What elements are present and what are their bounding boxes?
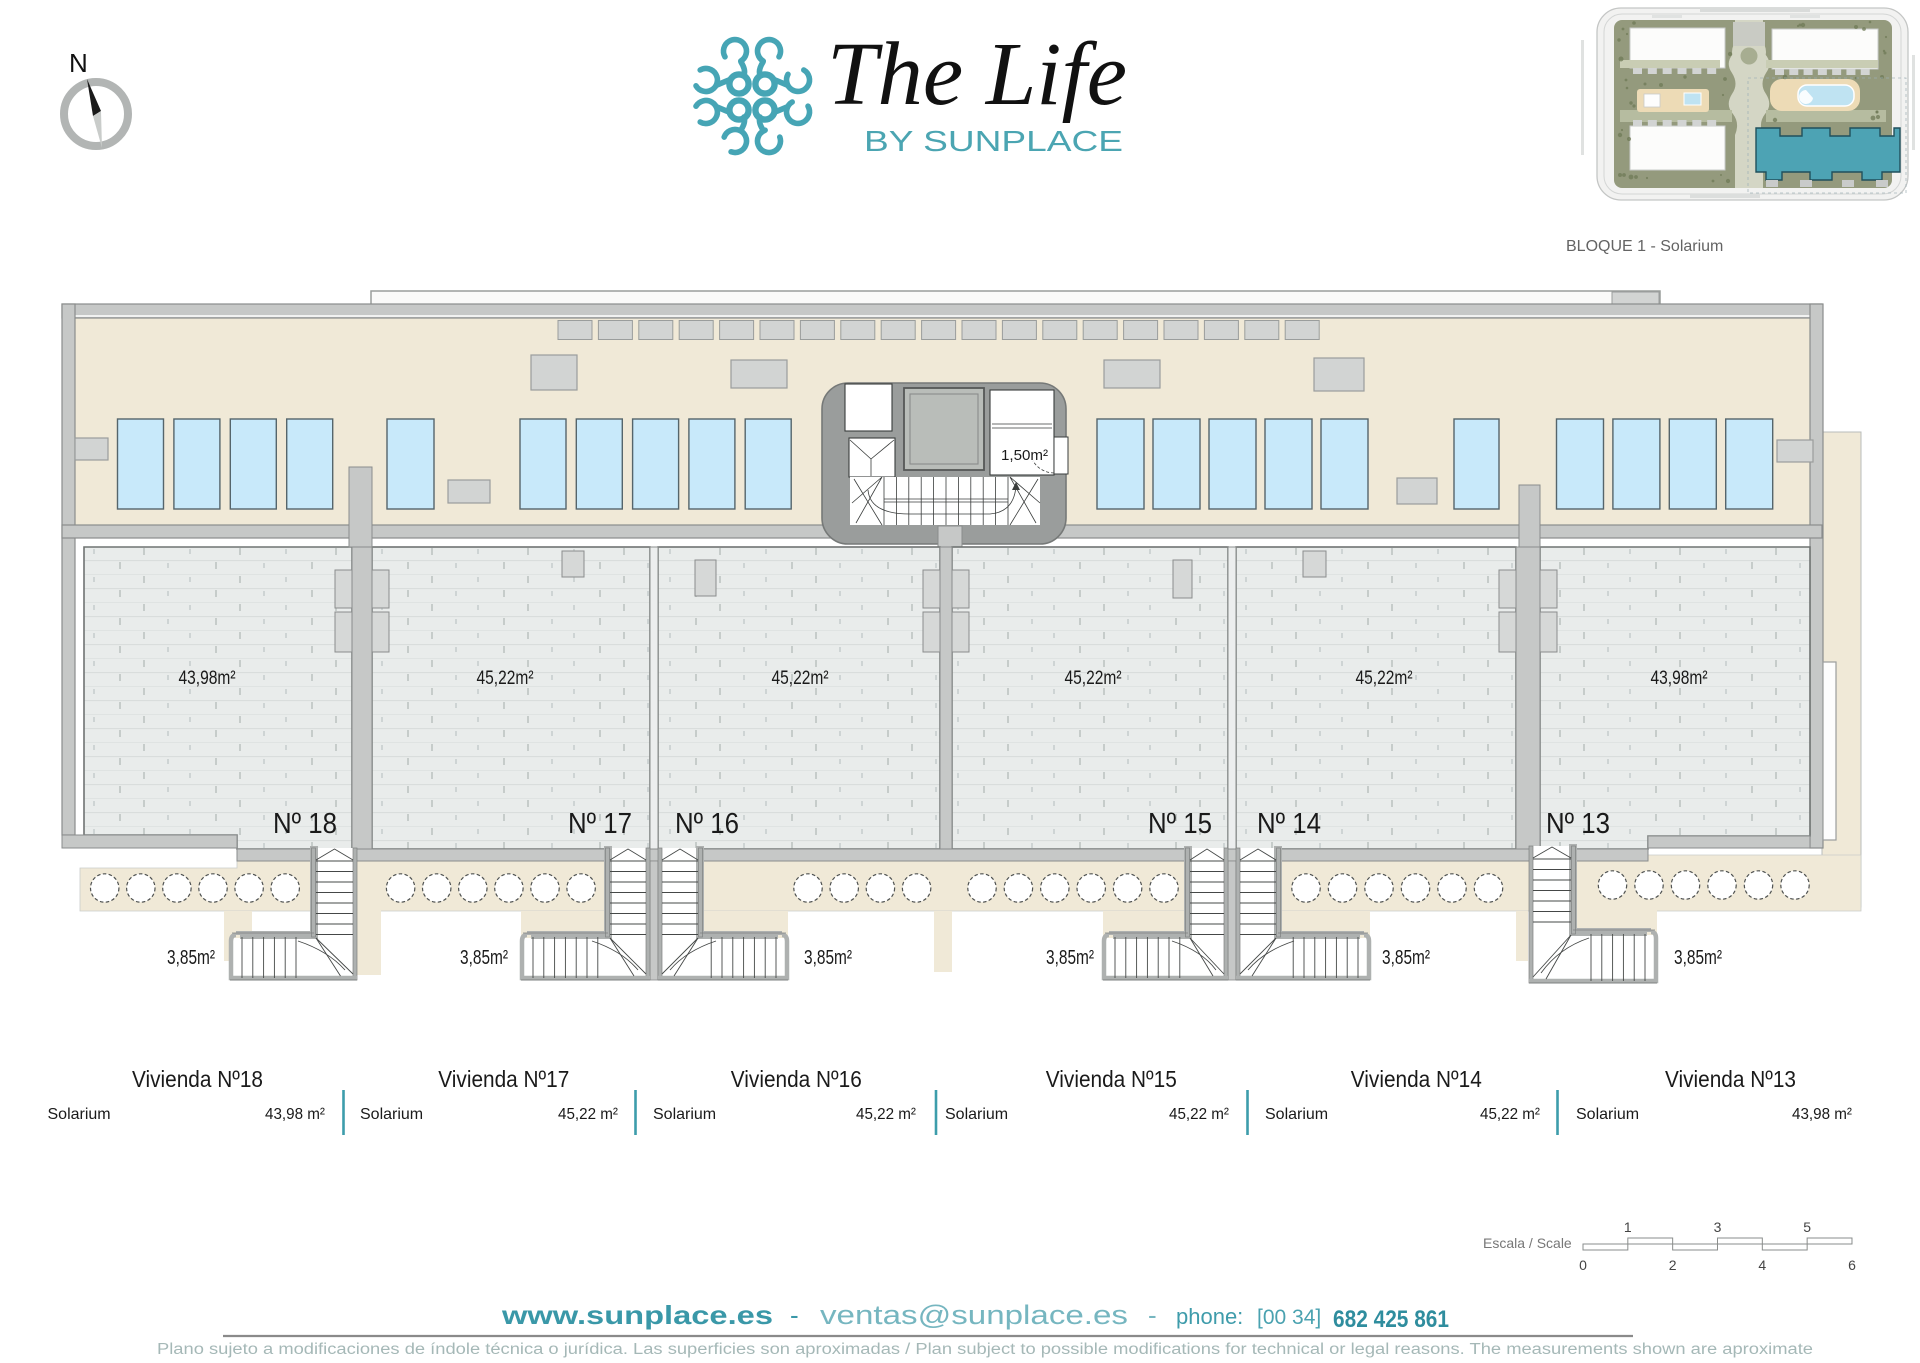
svg-text:43,98 m²: 43,98 m² <box>1792 1106 1853 1123</box>
svg-text:Nº 13: Nº 13 <box>1546 808 1610 840</box>
svg-text:3,85m²: 3,85m² <box>804 947 852 969</box>
svg-text:43,98 m²: 43,98 m² <box>265 1106 326 1123</box>
svg-text:phone:: phone: <box>1176 1304 1243 1329</box>
svg-text:45,22 m²: 45,22 m² <box>856 1106 917 1123</box>
svg-text:Escala / Scale: Escala / Scale <box>1483 1235 1572 1251</box>
svg-text:Nº 18: Nº 18 <box>273 808 337 840</box>
svg-text:Vivienda Nº17: Vivienda Nº17 <box>438 1066 569 1092</box>
svg-text:Vivienda Nº15: Vivienda Nº15 <box>1046 1066 1177 1092</box>
svg-text:5: 5 <box>1803 1219 1811 1235</box>
svg-text:Nº 14: Nº 14 <box>1257 808 1321 840</box>
svg-text:43,98m²: 43,98m² <box>1651 668 1708 689</box>
svg-text:[00 34]: [00 34] <box>1257 1306 1321 1329</box>
svg-text:43,98m²: 43,98m² <box>179 668 236 689</box>
svg-text:3,85m²: 3,85m² <box>1382 947 1430 969</box>
svg-text:45,22m²: 45,22m² <box>477 668 534 689</box>
svg-text:Nº 15: Nº 15 <box>1148 808 1212 840</box>
svg-text:3: 3 <box>1714 1219 1722 1235</box>
svg-text:Nº 17: Nº 17 <box>568 808 632 840</box>
svg-text:3,85m²: 3,85m² <box>167 947 215 969</box>
svg-text:1,50m²: 1,50m² <box>1001 447 1048 464</box>
svg-text:-: - <box>1148 1300 1157 1330</box>
svg-text:3,85m²: 3,85m² <box>1046 947 1094 969</box>
svg-text:2: 2 <box>1669 1257 1677 1273</box>
svg-text:45,22 m²: 45,22 m² <box>558 1106 619 1123</box>
svg-text:Vivienda Nº18: Vivienda Nº18 <box>132 1066 263 1092</box>
svg-text:-: - <box>790 1300 799 1330</box>
svg-text:3,85m²: 3,85m² <box>1674 947 1722 969</box>
svg-text:Solarium: Solarium <box>48 1106 111 1123</box>
svg-text:Plano sujeto a modificaciones: Plano sujeto a modificaciones de índole … <box>157 1341 1813 1358</box>
svg-text:ventas@sunplace.es: ventas@sunplace.es <box>820 1300 1128 1330</box>
svg-text:3,85m²: 3,85m² <box>460 947 508 969</box>
svg-text:www.sunplace.es: www.sunplace.es <box>501 1300 773 1330</box>
svg-text:Solarium: Solarium <box>1576 1106 1639 1123</box>
svg-text:45,22m²: 45,22m² <box>1356 668 1413 689</box>
svg-text:Solarium: Solarium <box>1265 1106 1328 1123</box>
svg-text:Nº 16: Nº 16 <box>675 808 739 840</box>
svg-text:4: 4 <box>1758 1257 1766 1273</box>
svg-text:45,22m²: 45,22m² <box>772 668 829 689</box>
svg-text:6: 6 <box>1848 1257 1856 1273</box>
svg-text:1: 1 <box>1624 1219 1632 1235</box>
svg-text:The Life: The Life <box>827 25 1127 124</box>
svg-text:Vivienda Nº14: Vivienda Nº14 <box>1351 1066 1482 1092</box>
svg-text:45,22m²: 45,22m² <box>1065 668 1122 689</box>
svg-text:Vivienda Nº16: Vivienda Nº16 <box>731 1066 862 1092</box>
svg-text:Solarium: Solarium <box>653 1106 716 1123</box>
svg-text:0: 0 <box>1579 1257 1587 1273</box>
svg-text:45,22 m²: 45,22 m² <box>1169 1106 1230 1123</box>
svg-text:Solarium: Solarium <box>945 1106 1008 1123</box>
svg-text:BY SUNPLACE: BY SUNPLACE <box>864 126 1123 158</box>
svg-text:45,22 m²: 45,22 m² <box>1480 1106 1541 1123</box>
svg-text:Solarium: Solarium <box>360 1106 423 1123</box>
svg-text:N: N <box>69 48 88 78</box>
svg-text:Vivienda Nº13: Vivienda Nº13 <box>1665 1066 1796 1092</box>
svg-text:682 425 861: 682 425 861 <box>1333 1306 1449 1333</box>
svg-text:BLOQUE 1 - Solarium: BLOQUE 1 - Solarium <box>1566 238 1723 255</box>
